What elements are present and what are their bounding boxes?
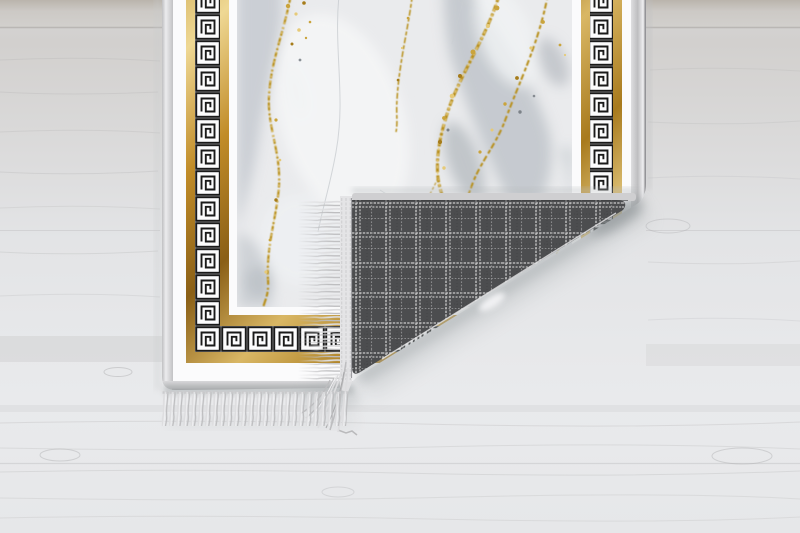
fold-fringe [298, 200, 340, 380]
greek-key-band-left [195, 0, 220, 326]
rug-on-wood-floor [0, 0, 800, 533]
bottom-fringe-strands [160, 392, 348, 426]
product-photo [0, 0, 800, 533]
bottom-fringe [160, 392, 348, 426]
rug-right-contact-shadow [646, 0, 651, 190]
fold-top-binding [352, 193, 636, 201]
fold-edge-top-shadow [352, 188, 634, 193]
rug-left-contact-shadow [155, 0, 160, 390]
